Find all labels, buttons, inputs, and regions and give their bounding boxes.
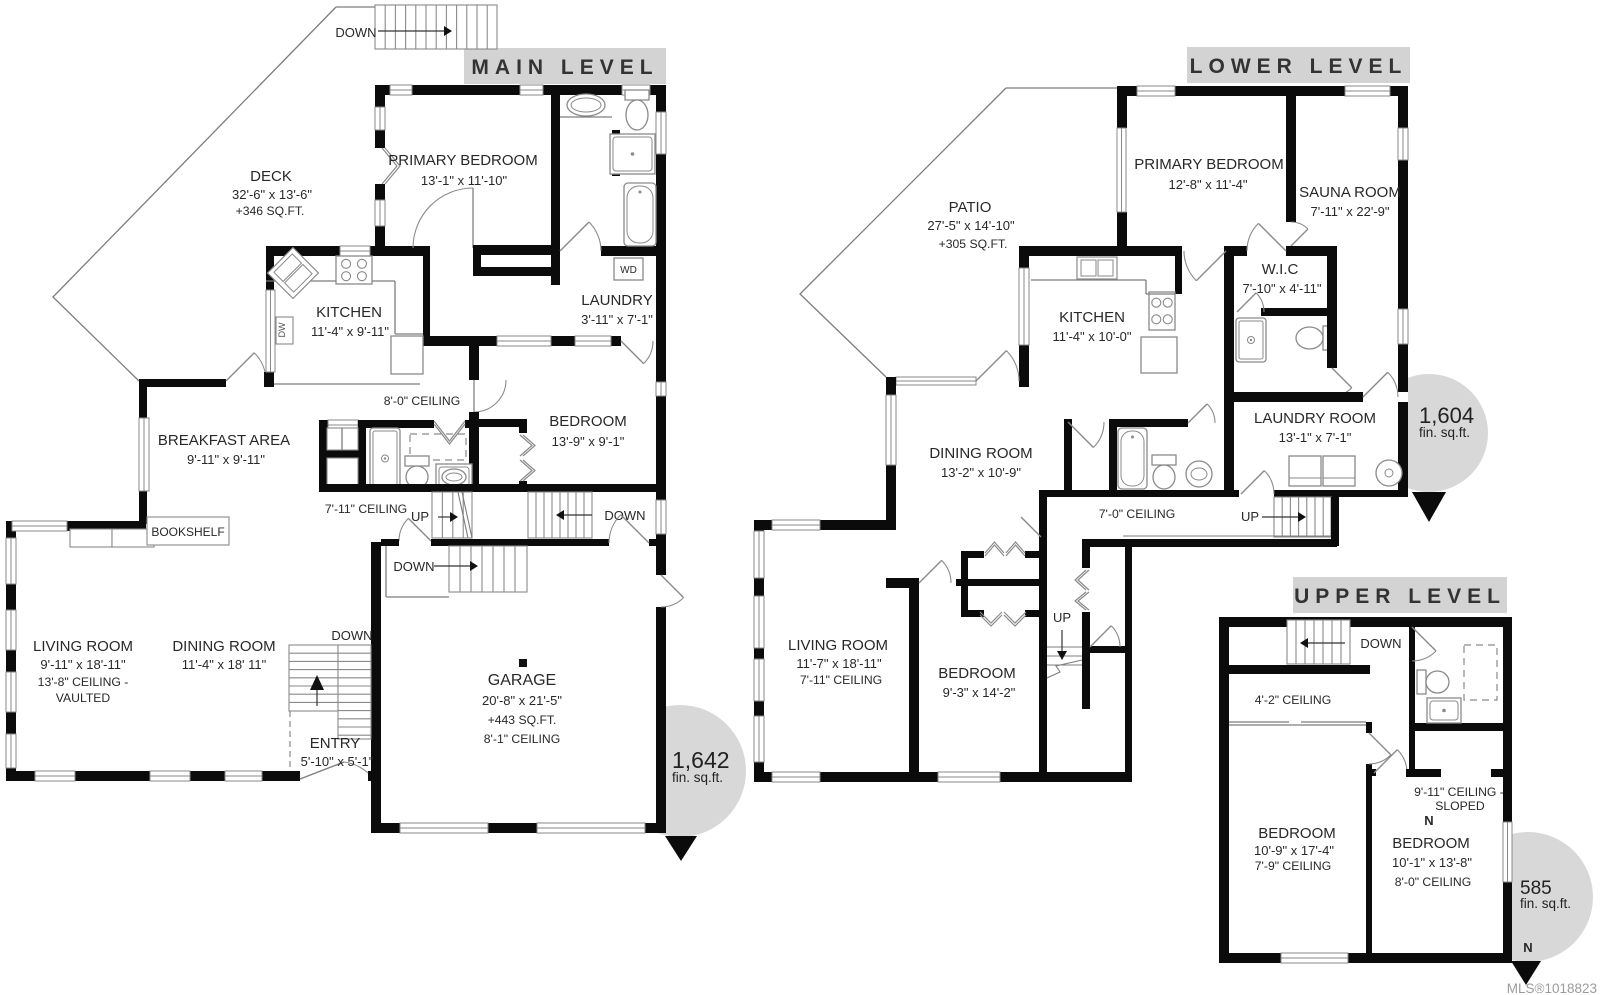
svg-text:9'-11" CEILING -: 9'-11" CEILING - xyxy=(1414,785,1504,799)
svg-text:LIVING ROOM: LIVING ROOM xyxy=(788,637,888,654)
svg-text:N: N xyxy=(1424,813,1433,828)
svg-text:13'-1" x 11'-10": 13'-1" x 11'-10" xyxy=(421,173,508,188)
svg-text:11'-7" x 18'-11": 11'-7" x 18'-11" xyxy=(796,656,882,671)
svg-text:DOWN: DOWN xyxy=(393,559,434,574)
svg-text:LOWER LEVEL: LOWER LEVEL xyxy=(1190,55,1408,78)
svg-text:9'-11" x 9'-11": 9'-11" x 9'-11" xyxy=(187,452,265,467)
svg-text:DW: DW xyxy=(277,322,287,337)
svg-text:N: N xyxy=(1523,940,1532,955)
svg-text:+346 SQ.FT.: +346 SQ.FT. xyxy=(236,204,305,218)
svg-text:DOWN: DOWN xyxy=(335,25,376,40)
svg-text:fin. sq.ft.: fin. sq.ft. xyxy=(1419,425,1470,440)
svg-text:DECK: DECK xyxy=(250,168,292,185)
svg-text:DINING ROOM: DINING ROOM xyxy=(172,638,275,655)
svg-text:13'-2" x 10'-9": 13'-2" x 10'-9" xyxy=(941,465,1021,480)
svg-text:BEDROOM: BEDROOM xyxy=(549,413,627,430)
svg-text:UP: UP xyxy=(1053,610,1071,625)
svg-text:27'-5" x 14'-10": 27'-5" x 14'-10" xyxy=(927,218,1015,233)
svg-text:10'-9" x 17'-4": 10'-9" x 17'-4" xyxy=(1254,843,1334,858)
svg-text:7'-10" x 4'-11": 7'-10" x 4'-11" xyxy=(1243,281,1322,296)
svg-text:20'-8" x 21'-5": 20'-8" x 21'-5" xyxy=(482,693,562,708)
svg-text:BOOKSHELF: BOOKSHELF xyxy=(151,525,224,539)
svg-text:11'-4" x 18' 11": 11'-4" x 18' 11" xyxy=(182,657,267,672)
svg-text:+305 SQ.FT.: +305 SQ.FT. xyxy=(939,237,1008,251)
svg-text:BREAKFAST AREA: BREAKFAST AREA xyxy=(158,432,290,449)
svg-text:7'-11" CEILING: 7'-11" CEILING xyxy=(800,673,882,687)
svg-text:VAULTED: VAULTED xyxy=(56,691,111,705)
svg-text:fin. sq.ft.: fin. sq.ft. xyxy=(1520,896,1571,911)
svg-text:32'-6" x 13'-6": 32'-6" x 13'-6" xyxy=(232,187,312,202)
svg-text:BEDROOM: BEDROOM xyxy=(1258,825,1336,842)
svg-text:5'-10" x 5'-1": 5'-10" x 5'-1" xyxy=(301,754,374,769)
svg-text:8'-1" CEILING: 8'-1" CEILING xyxy=(484,732,560,746)
svg-text:LAUNDRY ROOM: LAUNDRY ROOM xyxy=(1254,410,1376,427)
svg-text:12'-8" x 11'-4": 12'-8" x 11'-4" xyxy=(1169,177,1248,192)
svg-text:DOWN: DOWN xyxy=(1360,636,1401,651)
svg-text:MAIN LEVEL: MAIN LEVEL xyxy=(471,56,658,79)
svg-text:DOWN: DOWN xyxy=(604,508,645,523)
svg-text:MLS®1018823: MLS®1018823 xyxy=(1507,981,1597,995)
svg-text:13'-8" CEILING -: 13'-8" CEILING - xyxy=(38,675,129,689)
svg-text:PRIMARY BEDROOM: PRIMARY BEDROOM xyxy=(1134,156,1283,173)
svg-text:UP: UP xyxy=(1241,509,1259,524)
svg-text:10'-1" x 13'-8": 10'-1" x 13'-8" xyxy=(1392,855,1472,870)
svg-text:+443 SQ.FT.: +443 SQ.FT. xyxy=(488,713,557,727)
svg-text:SAUNA ROOM: SAUNA ROOM xyxy=(1299,184,1401,201)
svg-text:BEDROOM: BEDROOM xyxy=(938,665,1016,682)
svg-text:LAUNDRY: LAUNDRY xyxy=(581,292,652,309)
svg-text:DINING ROOM: DINING ROOM xyxy=(929,445,1032,462)
svg-text:ENTRY: ENTRY xyxy=(310,735,361,752)
svg-text:KITCHEN: KITCHEN xyxy=(316,304,382,321)
svg-text:LIVING ROOM: LIVING ROOM xyxy=(33,638,133,655)
svg-text:W.I.C: W.I.C xyxy=(1262,261,1299,278)
svg-text:13'-1" x 7'-1": 13'-1" x 7'-1" xyxy=(1279,430,1352,445)
svg-text:11'-4" x 10'-0": 11'-4" x 10'-0" xyxy=(1053,329,1132,344)
svg-text:9'-3" x 14'-2": 9'-3" x 14'-2" xyxy=(943,685,1016,700)
svg-text:7'-0" CEILING: 7'-0" CEILING xyxy=(1099,507,1175,521)
svg-text:7'-11" x 22'-9": 7'-11" x 22'-9" xyxy=(1311,204,1390,219)
svg-text:7'-9" CEILING: 7'-9" CEILING xyxy=(1255,859,1331,873)
svg-text:11'-4" x 9'-11": 11'-4" x 9'-11" xyxy=(311,324,389,339)
svg-text:fin. sq.ft.: fin. sq.ft. xyxy=(672,770,723,785)
svg-text:WD: WD xyxy=(620,265,637,276)
svg-text:3'-11" x 7'-1": 3'-11" x 7'-1" xyxy=(581,312,653,327)
svg-text:UP: UP xyxy=(411,509,429,524)
svg-text:BEDROOM: BEDROOM xyxy=(1392,835,1470,852)
svg-text:KITCHEN: KITCHEN xyxy=(1059,309,1125,326)
svg-text:PRIMARY BEDROOM: PRIMARY BEDROOM xyxy=(388,152,537,169)
svg-text:4'-2" CEILING: 4'-2" CEILING xyxy=(1255,693,1331,707)
svg-text:8'-0" CEILING: 8'-0" CEILING xyxy=(384,394,460,408)
svg-text:UPPER LEVEL: UPPER LEVEL xyxy=(1294,585,1506,608)
svg-text:PATIO: PATIO xyxy=(949,199,992,216)
svg-text:8'-0" CEILING: 8'-0" CEILING xyxy=(1395,875,1471,889)
svg-text:9'-11" x 18'-11": 9'-11" x 18'-11" xyxy=(40,657,126,672)
svg-text:13'-9" x 9'-1": 13'-9" x 9'-1" xyxy=(552,434,625,449)
svg-text:GARAGE: GARAGE xyxy=(488,672,556,689)
svg-text:SLOPED: SLOPED xyxy=(1435,799,1485,813)
svg-text:DOWN: DOWN xyxy=(331,628,372,643)
svg-text:7'-11" CEILING: 7'-11" CEILING xyxy=(325,502,407,516)
